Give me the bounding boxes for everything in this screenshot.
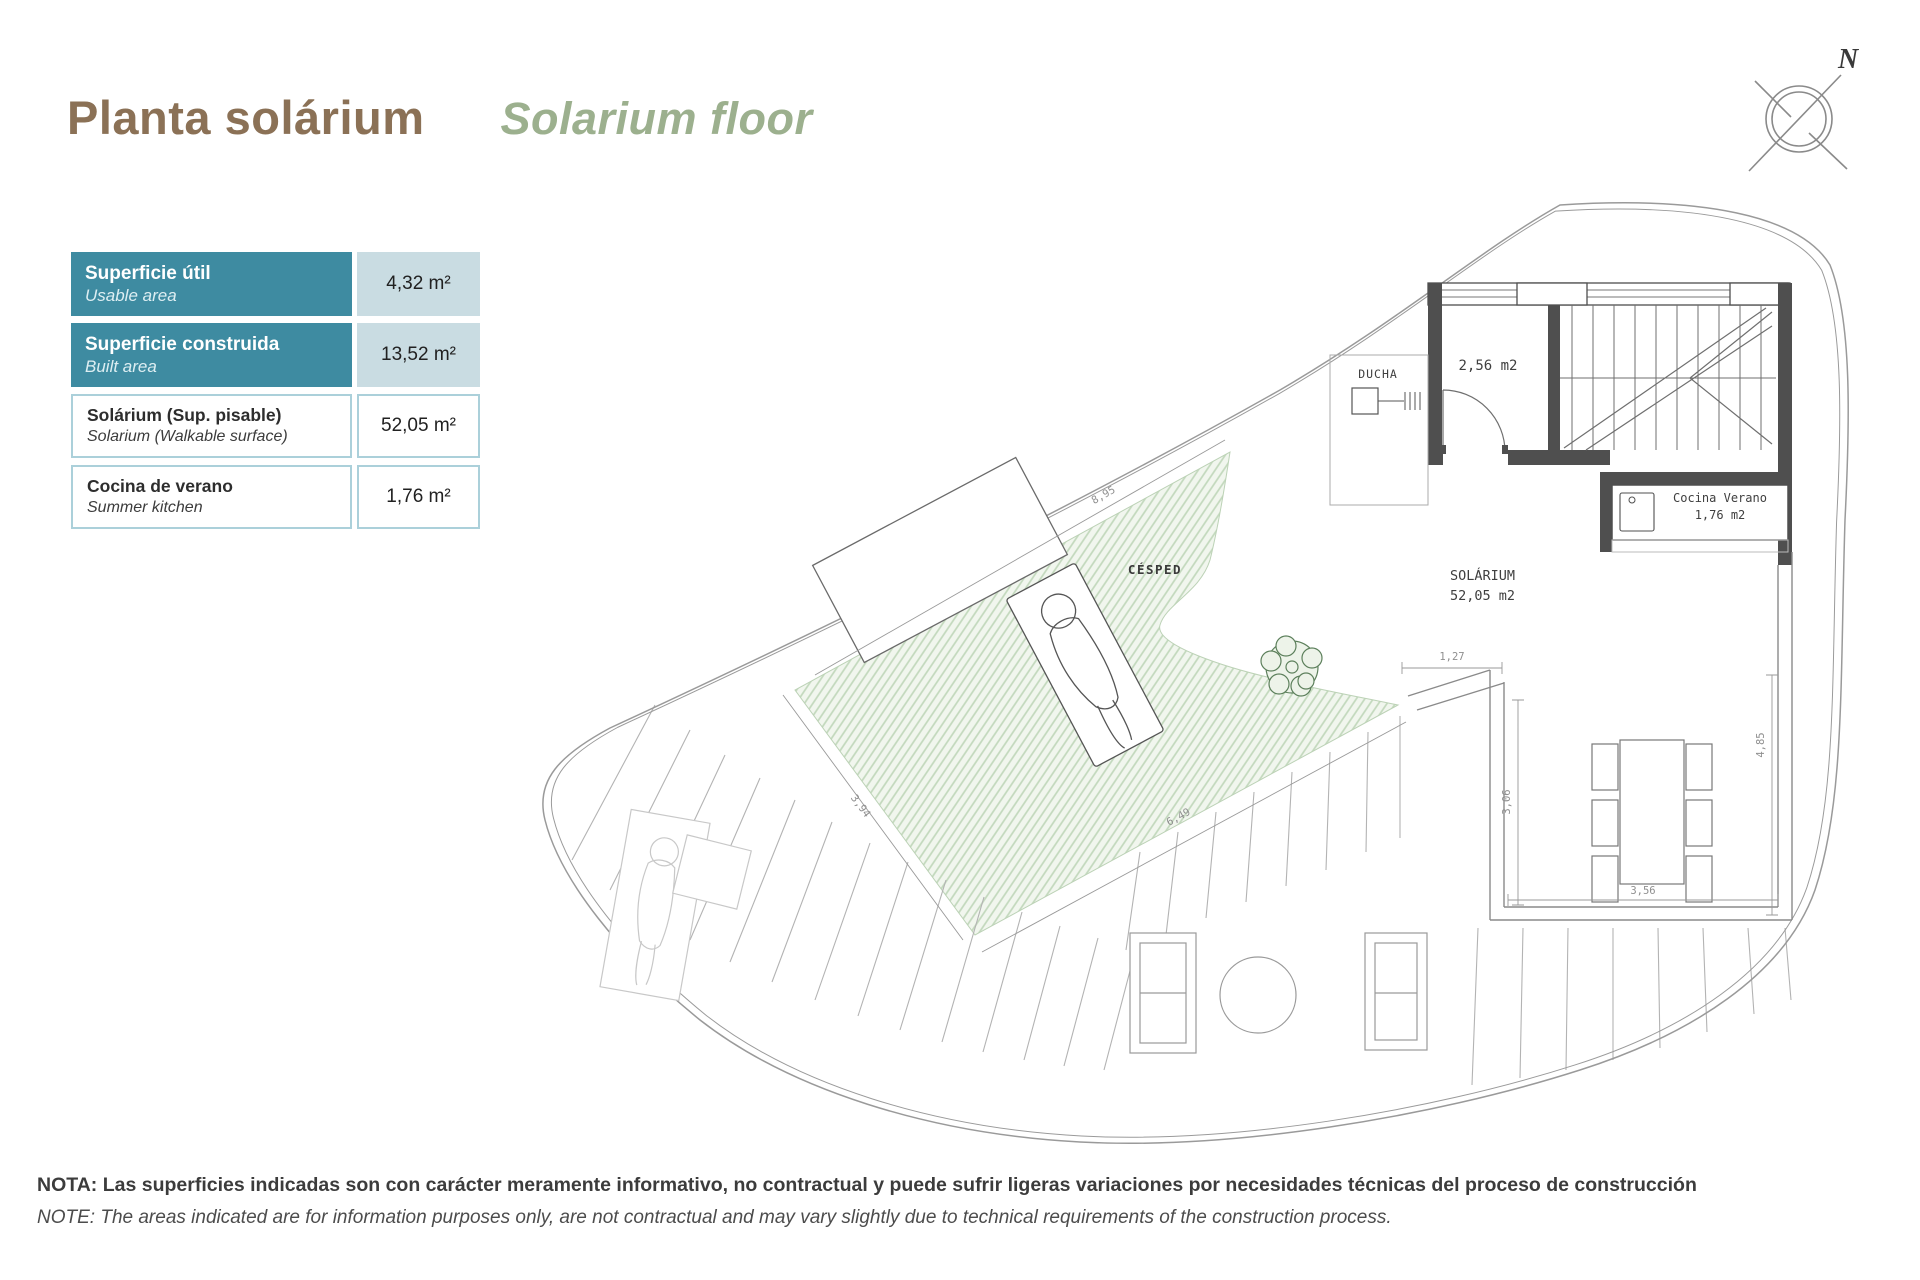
label-solarium-1: SOLÁRIUM xyxy=(1450,567,1515,584)
deck-slats-right xyxy=(1472,928,1791,1085)
label-room-area: 2,56 m2 xyxy=(1458,358,1517,374)
dim-terrace-top: 1,27 xyxy=(1439,651,1464,663)
disclaimer-english: NOTE: The areas indicated are for inform… xyxy=(37,1207,1857,1229)
label-lawn: CÉSPED xyxy=(1128,562,1182,577)
row-value-usable-area: 4,32 m² xyxy=(357,252,480,316)
label-en: Built area xyxy=(85,357,338,377)
label-summer-kitchen-2: 1,76 m2 xyxy=(1695,508,1746,522)
row-value-summer-kitchen: 1,76 m² xyxy=(357,465,480,529)
pool-deck-furniture xyxy=(1130,933,1427,1053)
dim-terrace-right: 4,85 xyxy=(1755,732,1767,757)
dim-terrace-bottom: 3,56 xyxy=(1630,885,1655,897)
label-en: Usable area xyxy=(85,286,338,306)
disclaimer-note: NOTA: Las superficies indicadas son con … xyxy=(37,1174,1857,1229)
floor-plan-drawing: DUCHA 2,56 m2 Cocina Verano 1,76 m2 SOLÁ… xyxy=(520,180,1880,1170)
page-title-english: Solarium floor xyxy=(501,93,813,145)
label-es: Superficie construida xyxy=(85,333,338,357)
label-solarium-2: 52,05 m2 xyxy=(1450,588,1515,604)
compass-rose-icon: N xyxy=(1736,26,1886,176)
dim-lawn-top: 8,95 xyxy=(1090,484,1118,507)
label-shower: DUCHA xyxy=(1358,367,1398,381)
compass-north-label: N xyxy=(1837,44,1860,75)
disclaimer-spanish: NOTA: Las superficies indicadas son con … xyxy=(37,1174,1857,1197)
faint-lounger-with-person xyxy=(600,809,751,1000)
label-summer-kitchen-1: Cocina Verano xyxy=(1673,491,1767,505)
row-label-built-area: Superficie construida Built area xyxy=(71,323,352,387)
label-es: Cocina de verano xyxy=(87,476,336,498)
compass-graphics xyxy=(1749,75,1847,171)
row-label-usable-area: Superficie útil Usable area xyxy=(71,252,352,316)
dim-terrace-left: 3,06 xyxy=(1501,789,1513,814)
dining-set xyxy=(1592,740,1712,902)
row-value-built-area: 13,52 m² xyxy=(357,323,480,387)
page: Planta solárium Solarium floor N Superfi… xyxy=(0,0,1920,1280)
label-en: Solarium (Walkable surface) xyxy=(87,427,336,446)
page-header: Planta solárium Solarium floor xyxy=(67,90,813,145)
row-value-solarium: 52,05 m² xyxy=(357,394,480,458)
label-es: Solárium (Sup. pisable) xyxy=(87,405,336,427)
label-en: Summer kitchen xyxy=(87,498,336,517)
label-es: Superficie útil xyxy=(85,262,338,286)
page-title-spanish: Planta solárium xyxy=(67,90,425,145)
area-summary-table: Superficie útil Usable area 4,32 m² Supe… xyxy=(71,252,480,529)
tree xyxy=(1261,636,1322,696)
row-label-summer-kitchen: Cocina de verano Summer kitchen xyxy=(71,465,352,529)
dim-lawn-left: 3,94 xyxy=(848,792,873,819)
row-label-solarium: Solárium (Sup. pisable) Solarium (Walkab… xyxy=(71,394,352,458)
